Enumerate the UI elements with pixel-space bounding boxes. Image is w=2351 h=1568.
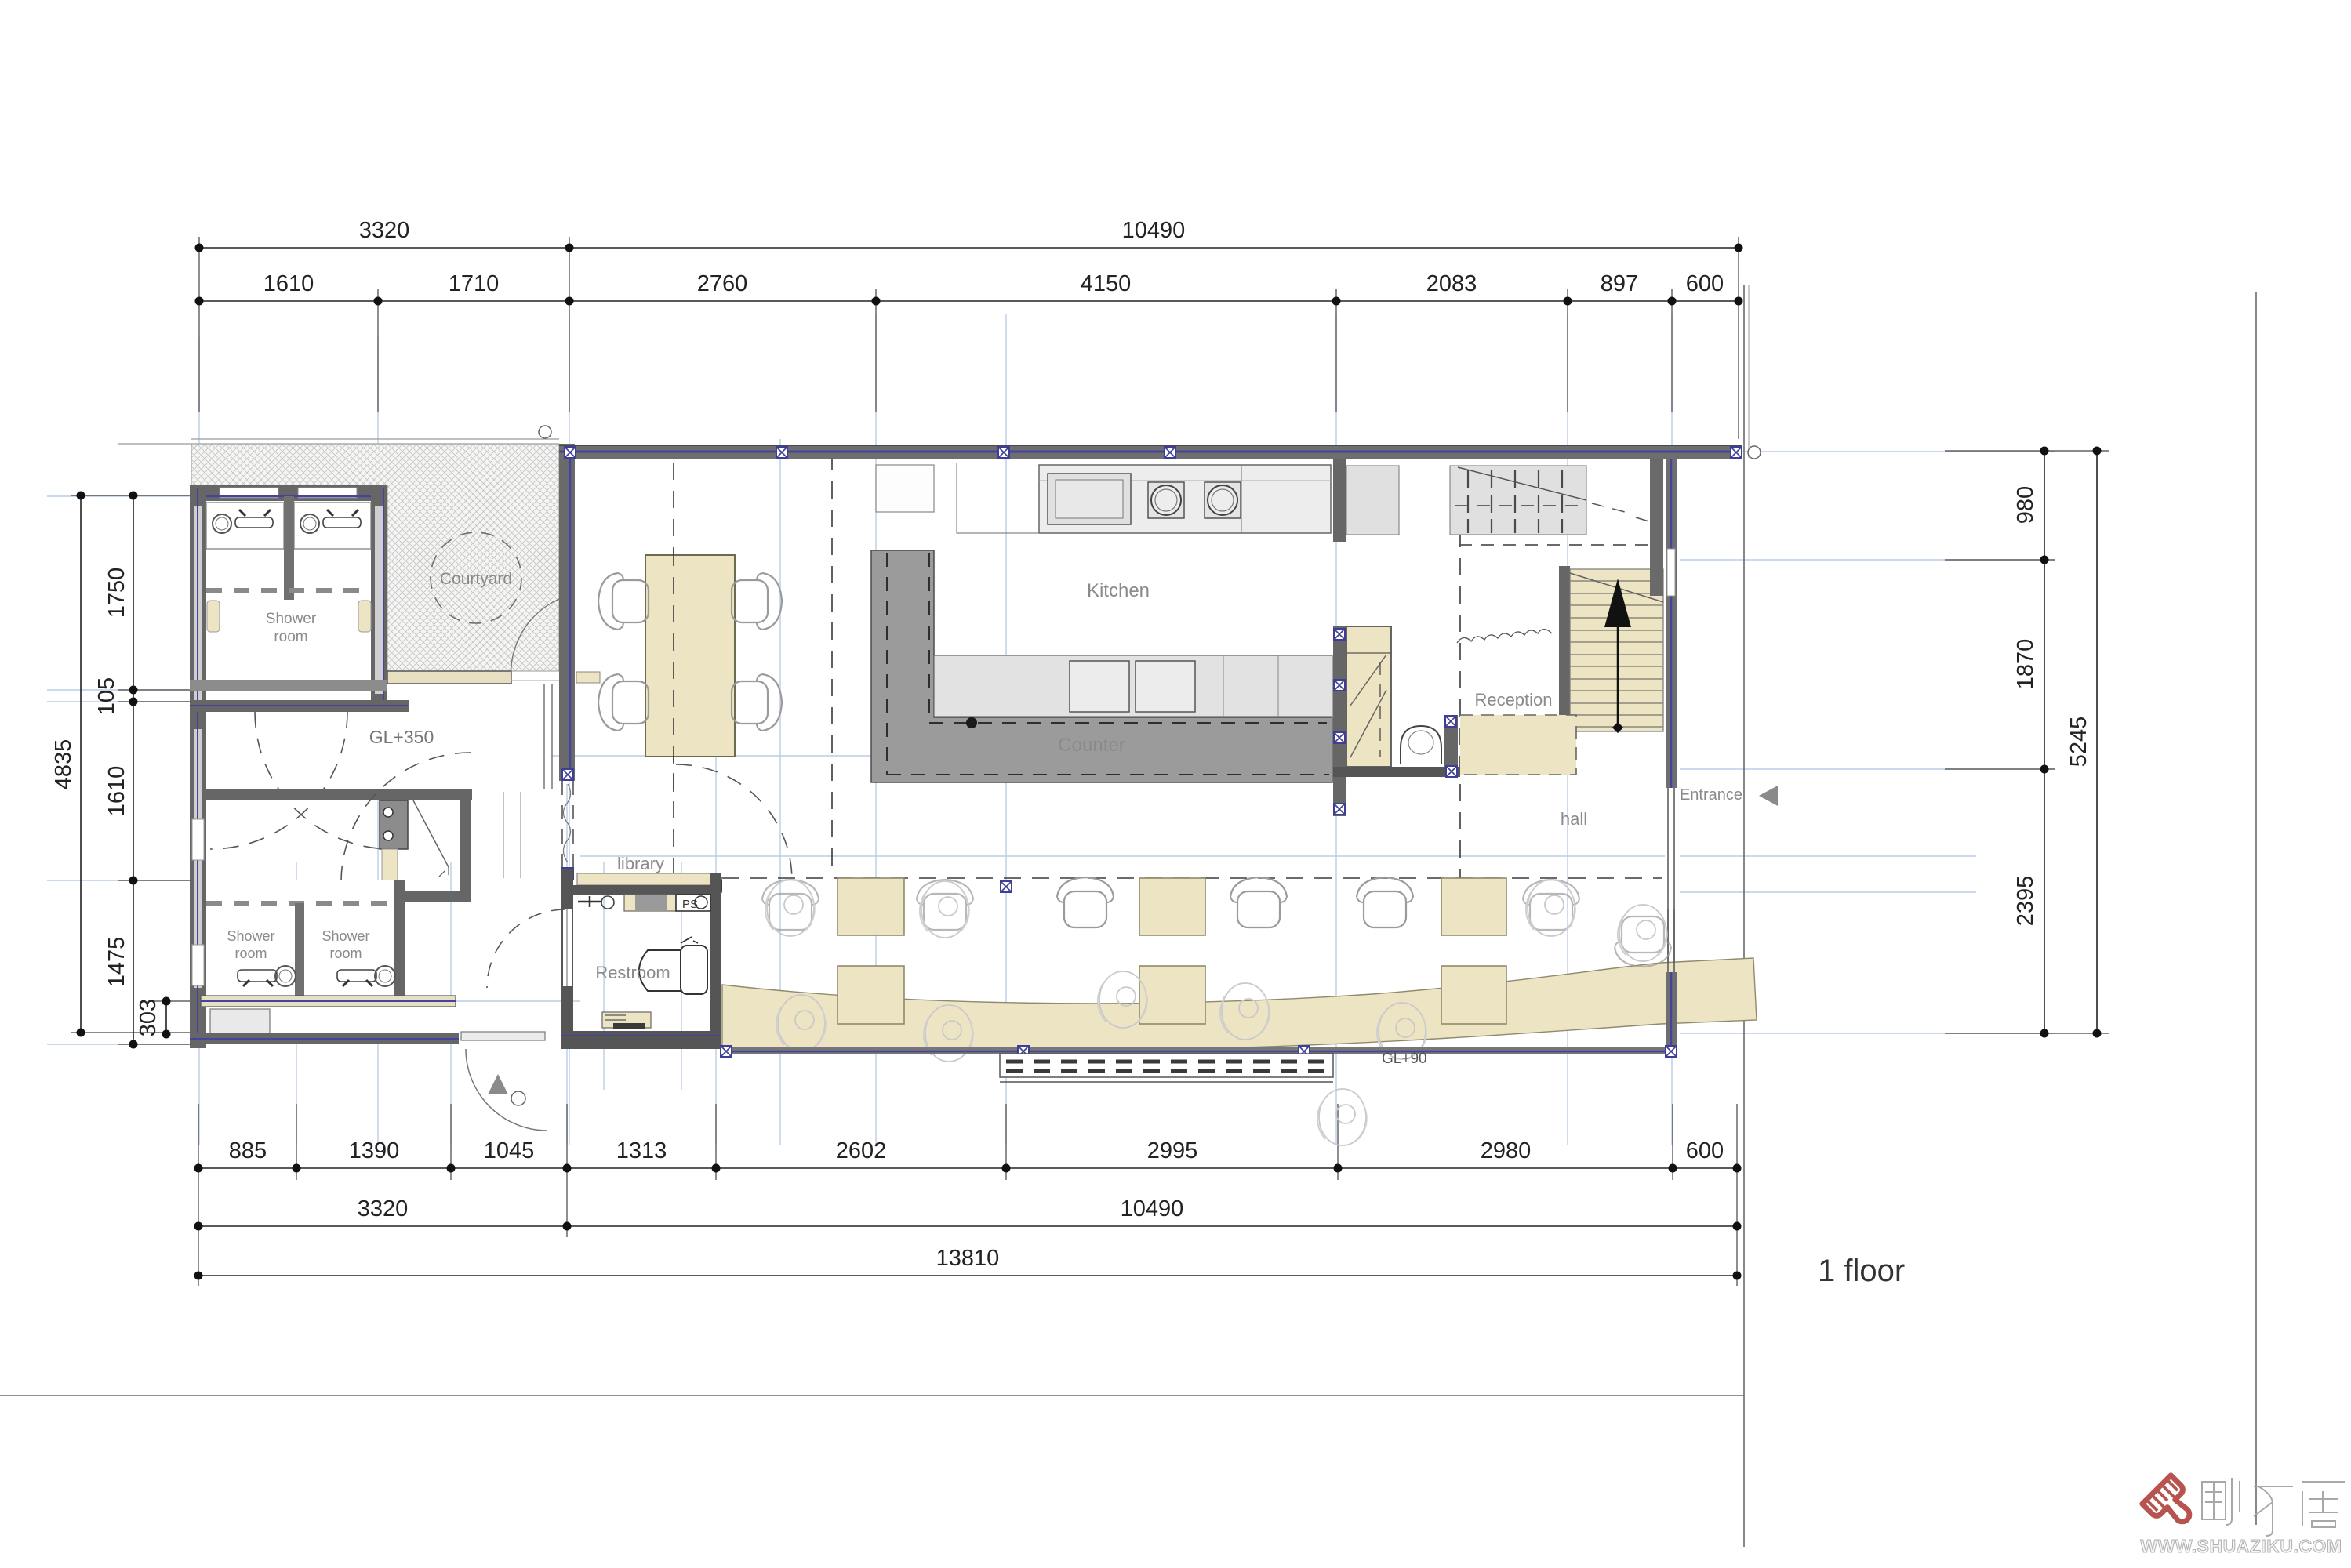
svg-text:hall: hall <box>1561 809 1587 829</box>
svg-text:GL+90: GL+90 <box>1382 1051 1427 1067</box>
svg-text:library: library <box>617 854 664 873</box>
svg-text:2395: 2395 <box>2013 876 2038 927</box>
svg-text:Shower: Shower <box>322 928 369 944</box>
svg-text:1750: 1750 <box>104 568 129 619</box>
svg-text:105: 105 <box>94 677 119 715</box>
svg-text:10490: 10490 <box>1122 218 1186 243</box>
svg-text:4150: 4150 <box>1081 271 1132 296</box>
svg-text:600: 600 <box>1686 271 1724 296</box>
svg-text:5245: 5245 <box>2066 717 2091 768</box>
svg-text:2760: 2760 <box>697 271 748 296</box>
svg-text:980: 980 <box>2013 486 2038 524</box>
svg-text:303: 303 <box>136 999 161 1036</box>
svg-text:Counter: Counter <box>1058 735 1125 756</box>
svg-text:1313: 1313 <box>616 1138 667 1163</box>
svg-text:1870: 1870 <box>2013 639 2038 690</box>
svg-text:10490: 10490 <box>1121 1196 1184 1221</box>
svg-text:600: 600 <box>1686 1138 1724 1163</box>
svg-text:Entrance: Entrance <box>1680 786 1742 804</box>
svg-text:3320: 3320 <box>359 218 410 243</box>
svg-text:2980: 2980 <box>1481 1138 1532 1163</box>
svg-text:1610: 1610 <box>263 271 314 296</box>
svg-text:1 floor: 1 floor <box>1818 1254 1905 1288</box>
svg-text:room: room <box>274 629 307 645</box>
svg-text:4835: 4835 <box>51 739 76 790</box>
svg-text:1710: 1710 <box>449 271 500 296</box>
svg-text:Courtyard: Courtyard <box>440 570 512 588</box>
svg-text:1475: 1475 <box>104 937 129 988</box>
svg-text:Restroom: Restroom <box>595 963 670 982</box>
svg-text:885: 885 <box>229 1138 267 1163</box>
svg-text:2602: 2602 <box>836 1138 887 1163</box>
svg-text:1045: 1045 <box>484 1138 535 1163</box>
svg-text:Shower: Shower <box>227 928 274 944</box>
svg-text:Reception: Reception <box>1474 690 1552 710</box>
svg-text:2083: 2083 <box>1426 271 1477 296</box>
svg-text:WWW.SHUAZIKU.COM: WWW.SHUAZIKU.COM <box>2140 1536 2342 1556</box>
svg-text:Kitchen: Kitchen <box>1087 580 1150 601</box>
svg-text:1610: 1610 <box>104 766 129 817</box>
svg-text:897: 897 <box>1601 271 1638 296</box>
svg-text:Shower: Shower <box>266 611 317 627</box>
svg-text:3320: 3320 <box>358 1196 409 1221</box>
svg-text:room: room <box>234 946 267 961</box>
svg-text:2995: 2995 <box>1147 1138 1198 1163</box>
svg-text:13810: 13810 <box>936 1246 1000 1271</box>
svg-text:1390: 1390 <box>349 1138 400 1163</box>
svg-text:room: room <box>329 946 362 961</box>
svg-text:GL+350: GL+350 <box>369 727 434 747</box>
